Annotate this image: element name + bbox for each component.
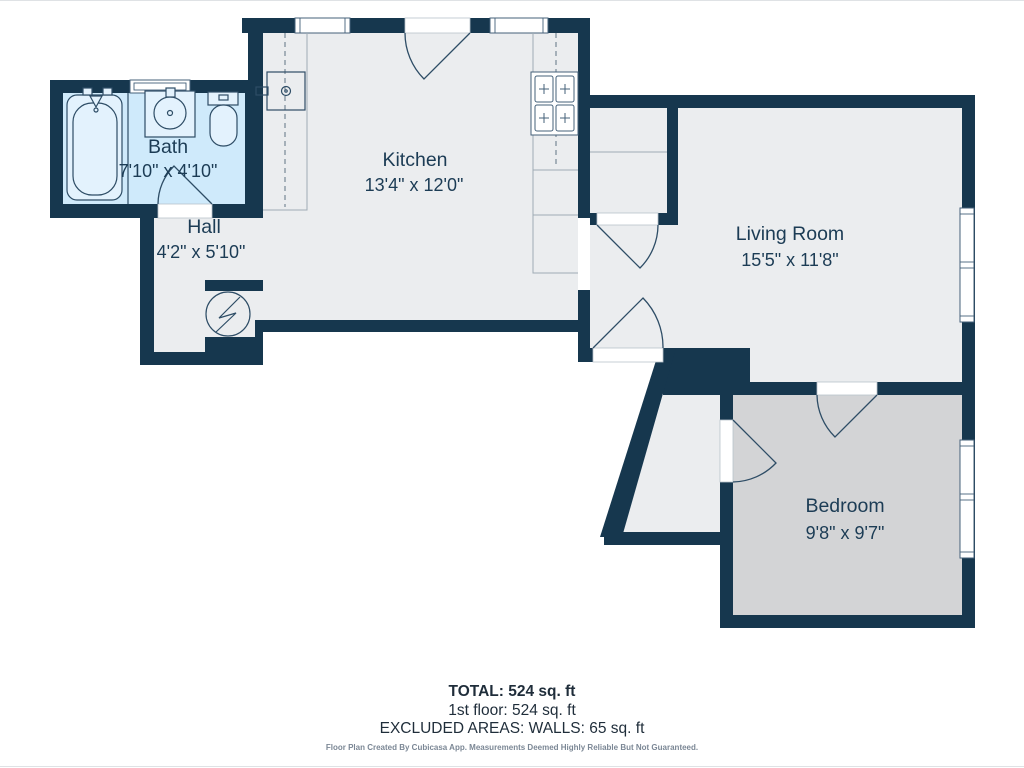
kitchen-label: Kitchen <box>382 149 447 171</box>
closet-bottom-wall-left <box>590 213 597 225</box>
bedroom-bottom-wall <box>720 615 975 628</box>
bath-label: Bath <box>148 136 188 158</box>
bath-sink-icon <box>145 88 195 137</box>
hall-left-wall <box>140 204 154 365</box>
first-floor-text: 1st floor: 524 sq. ft <box>448 702 576 719</box>
summary-block: TOTAL: 524 sq. ft 1st floor: 524 sq. ft … <box>326 683 698 752</box>
disclaimer-text: Floor Plan Created By Cubicasa App. Meas… <box>326 743 698 752</box>
hall-label: Hall <box>187 216 221 238</box>
water-heater-icon <box>206 292 250 336</box>
bedroom-dims: 9'8" x 9'7" <box>806 523 885 543</box>
bath-left-wall <box>50 80 63 218</box>
kitchen-hall-step-wall <box>255 320 263 365</box>
kitchen-living-passage <box>578 218 590 290</box>
hall-bottom-wall <box>140 352 263 365</box>
floor-plan-drawing: Bath 7'10" x 4'10" Hall 4'2" x 5'10" Kit… <box>0 0 1024 768</box>
entry-wall-bit <box>590 348 593 362</box>
bath-dims: 7'10" x 4'10" <box>119 161 218 181</box>
living-top-wall <box>590 95 975 108</box>
kitchen-right-wall-upper <box>578 18 590 218</box>
kitchen-right-wall-lower <box>578 290 590 362</box>
living-room-label: Living Room <box>736 223 844 245</box>
floor-plan-page: Bath 7'10" x 4'10" Hall 4'2" x 5'10" Kit… <box>0 0 1024 768</box>
vestibule-bottom-wall <box>604 532 733 545</box>
total-area-text: TOTAL: 524 sq. ft <box>449 683 576 700</box>
bedroom-top-door-sill <box>817 382 877 395</box>
toilet-icon <box>208 92 238 146</box>
kitchen-left-wall <box>248 18 263 218</box>
living-window-icon <box>960 208 974 322</box>
closet-right-wall <box>667 95 678 225</box>
closet-door-sill <box>597 213 658 225</box>
entry-door-sill <box>593 348 663 362</box>
heater-niche-top-wall <box>205 280 263 291</box>
kitchen-window-2-icon <box>490 18 548 33</box>
closet-bottom-wall-right <box>658 213 678 225</box>
kitchen-top-door-sill <box>405 18 470 33</box>
kitchen-window-1-icon <box>295 18 350 33</box>
excluded-areas-text: EXCLUDED AREAS: WALLS: 65 sq. ft <box>380 720 645 737</box>
kitchen-bottom-wall <box>255 320 590 332</box>
bedroom-window-icon <box>960 440 974 558</box>
stove-icon <box>531 72 578 135</box>
bedroom-label: Bedroom <box>805 495 884 517</box>
heater-niche-bottom-wall <box>205 337 263 352</box>
hall-dims: 4'2" x 5'10" <box>157 242 246 262</box>
bedroom-left-wall <box>720 382 733 628</box>
kitchen-dims: 13'4" x 12'0" <box>365 175 464 195</box>
bathtub-icon <box>67 88 122 200</box>
closet-floor <box>590 108 667 213</box>
bedroom-left-door-sill <box>720 420 733 482</box>
living-room-dims: 15'5" x 11'8" <box>741 250 838 270</box>
